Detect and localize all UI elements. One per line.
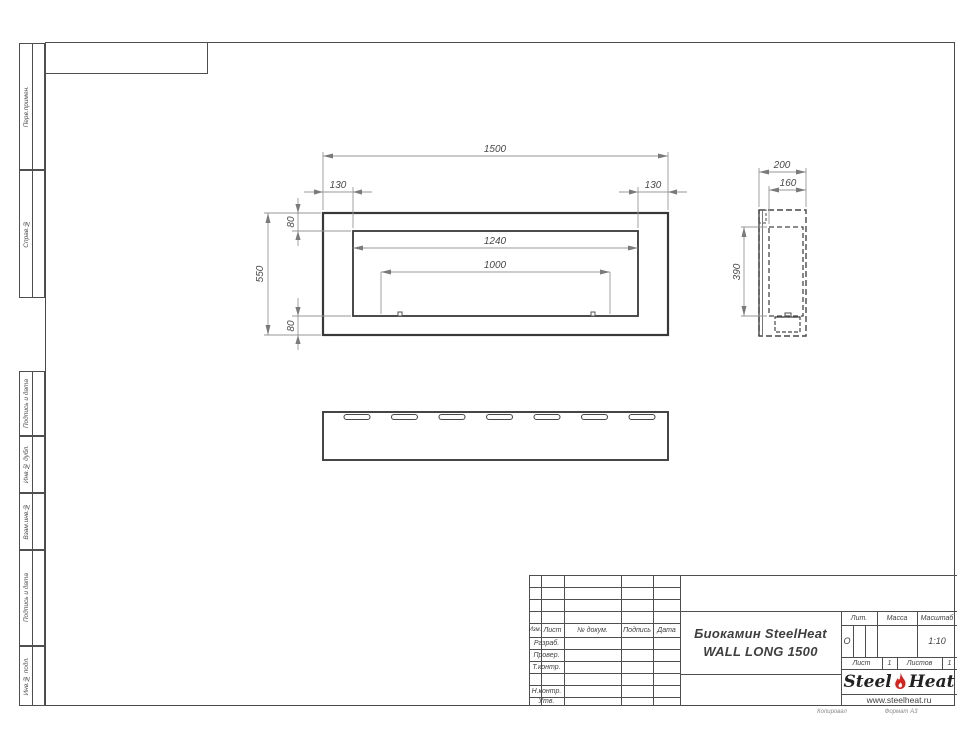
dim-side-opening-height: 390 [732, 263, 743, 280]
side-dimensions [741, 168, 806, 316]
side-burner-box-hidden [775, 317, 800, 332]
front-view [323, 213, 668, 335]
col-sign: Подпись [621, 623, 653, 637]
mass-header: Масса [877, 611, 917, 625]
front-dimension-texts: 1500 130 130 80 550 80 1240 1000 [255, 144, 662, 332]
dim-front-opening-width: 1240 [484, 236, 507, 247]
col-list: Лист [541, 623, 564, 637]
col-doc: № докум. [564, 623, 621, 637]
dim-front-edge-right: 130 [645, 180, 662, 191]
sheet-label: Лист [841, 657, 882, 669]
dim-front-bottom-border: 80 [286, 320, 297, 332]
row-prover: Провер. [529, 649, 564, 661]
dim-front-edge-left: 130 [330, 180, 347, 191]
dim-side-inner-depth: 160 [780, 178, 797, 189]
dim-front-top-border: 80 [286, 216, 297, 228]
row-nkontr: Н.контр. [529, 685, 564, 697]
col-date: Дата [653, 623, 680, 637]
row-utv: Утв. [529, 697, 564, 706]
title-line-2: WALL LONG 1500 [703, 644, 817, 659]
sheet-value: 1 [882, 657, 897, 669]
dim-front-burner-width: 1000 [484, 260, 507, 271]
side-view [759, 210, 806, 336]
side-opening-hidden-contour [769, 227, 803, 316]
bottom-view [323, 412, 668, 460]
dim-front-total-width: 1500 [484, 144, 507, 155]
logo-url: www.steelheat.ru [841, 694, 957, 706]
copied-note: Копировал [797, 708, 867, 716]
document-title: Биокамин SteelHeat WALL LONG 1500 [680, 611, 841, 674]
lit-value: О [841, 625, 853, 657]
lit-header: Лит. [841, 611, 877, 625]
sheets-label: Листов [897, 657, 942, 669]
title-line-1: Биокамин SteelHeat [694, 626, 827, 641]
logo-heat-text: Heat [909, 672, 955, 692]
dim-side-depth: 200 [773, 160, 791, 171]
front-burner-clip-right [591, 312, 595, 316]
flame-icon [893, 672, 908, 691]
sheets-value: 1 [942, 657, 957, 669]
format-note: Формат А3 [866, 708, 936, 716]
logo-steel-text: Steel [844, 672, 892, 692]
front-burner-clip-left [398, 312, 402, 316]
title-block: Изм. Лист № докум. Подпись Дата Разраб. … [529, 575, 957, 706]
vent-slots [344, 415, 655, 420]
front-dimensions [264, 152, 687, 350]
side-dimension-texts: 200 160 390 [732, 160, 797, 280]
col-izm: Изм. [529, 623, 541, 637]
scale-value: 1:10 [917, 625, 957, 657]
scale-header: Масштаб [917, 611, 957, 625]
row-razrab: Разраб. [529, 637, 564, 649]
row-tkontr: Т.контр. [529, 661, 564, 673]
steelheat-logo: Steel Heat [841, 669, 957, 694]
drawing-sheet: Перв.примен. Справ.№ Подпись и дата Инв.… [0, 0, 970, 749]
dim-front-height: 550 [255, 265, 266, 282]
